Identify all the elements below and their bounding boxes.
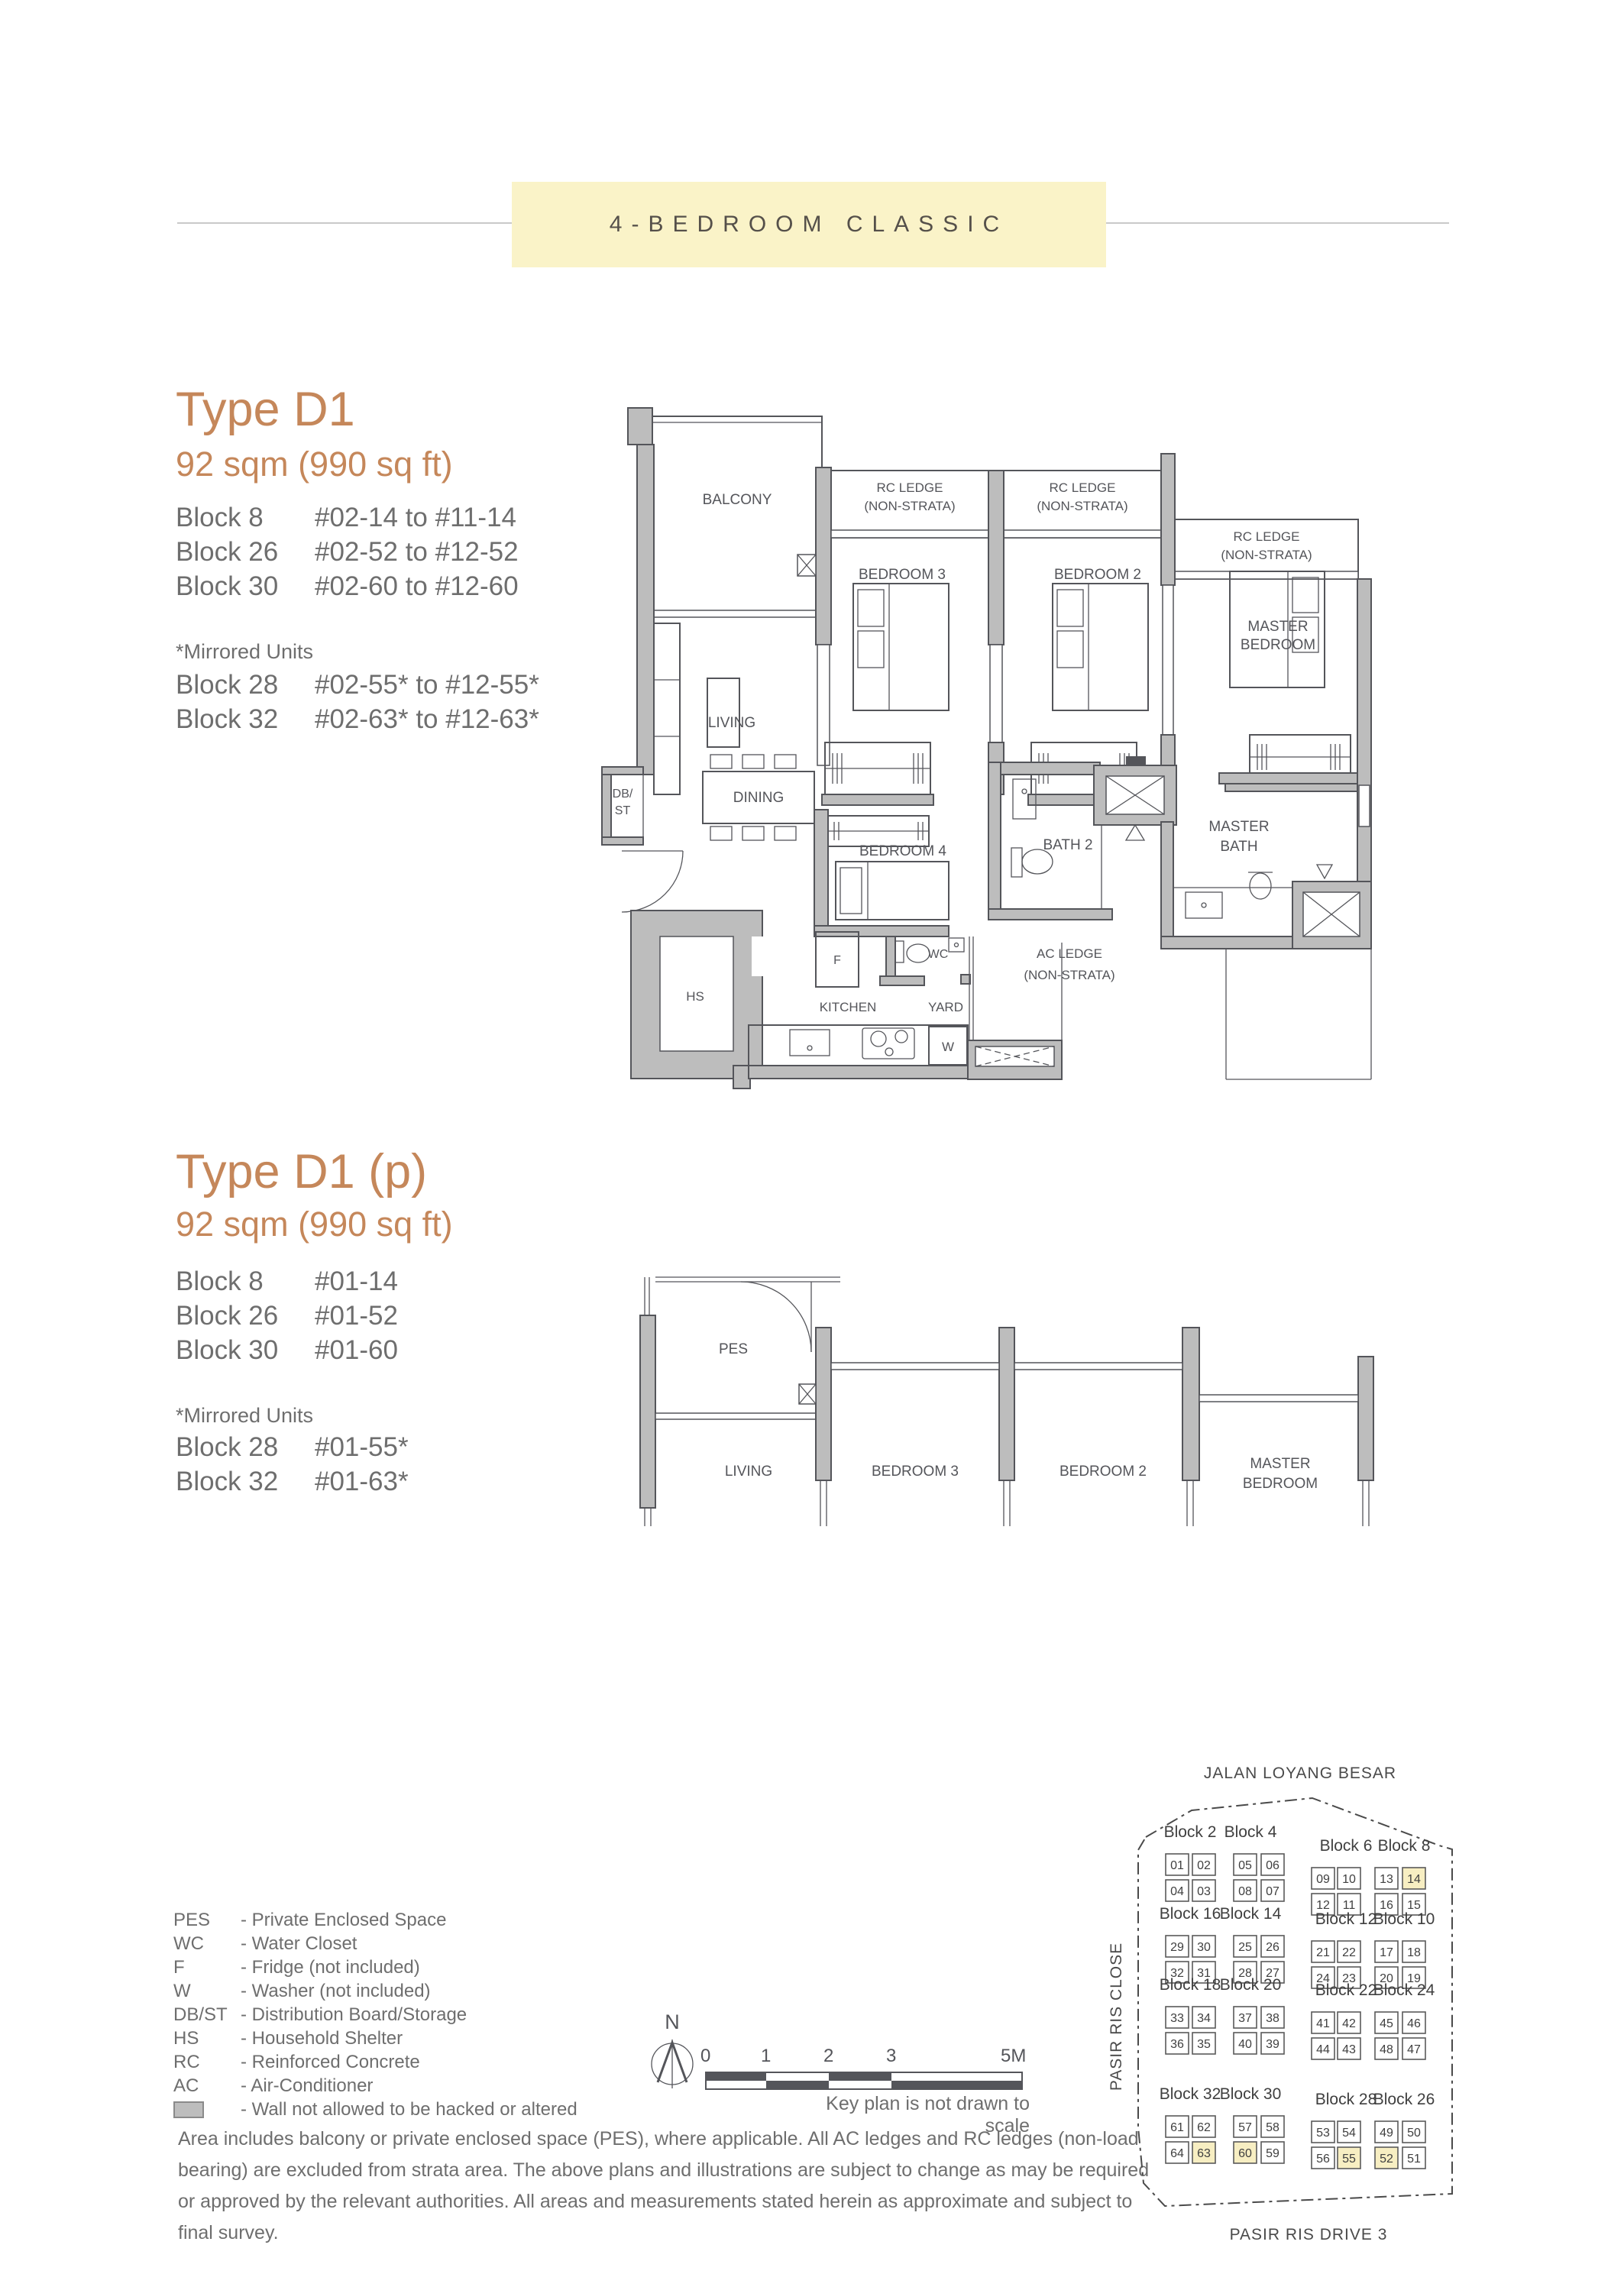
- legend-desc: - Wall not allowed to be hacked or alter…: [241, 2099, 577, 2120]
- keyplan-unit-number: 51: [1407, 2153, 1421, 2166]
- keyplan-unit-number: 02: [1197, 1859, 1211, 1872]
- block-units: #01-14: [315, 1266, 398, 1297]
- bedroom4-bed: [836, 862, 949, 920]
- keyplan-unit-number: 13: [1380, 1873, 1393, 1886]
- keyplan-block-label: Block 28: [1315, 2091, 1377, 2108]
- keyplan-unit-number: 46: [1407, 2017, 1421, 2030]
- living-window: [655, 1413, 816, 1419]
- ac-ledge-boundary: [1062, 943, 1371, 1079]
- type-d1-title: Type D1: [176, 382, 355, 437]
- keyplan-unit-number: 41: [1316, 2017, 1330, 2030]
- rc-ledge-label: RC LEDGE: [877, 480, 943, 495]
- fridge-label: F: [833, 954, 841, 967]
- block-name: Block 28: [176, 1432, 315, 1463]
- keyplan-block-label: Block 26: [1373, 2091, 1435, 2108]
- hs-label: HS: [686, 989, 704, 1004]
- block-row: Block 8#02-14 to #11-14: [176, 500, 519, 535]
- legend-desc: - Private Enclosed Space: [241, 1910, 446, 1931]
- tick-3: 3: [886, 2046, 896, 2067]
- bedroom3-label: BEDROOM 3: [872, 1464, 959, 1480]
- keyplan-unit-number: 07: [1266, 1885, 1279, 1898]
- pes-left-wall: [640, 1315, 655, 1508]
- block-row: Block 32#02-63* to #12-63*: [176, 702, 539, 736]
- st-label: ST: [615, 804, 631, 817]
- keyplan-unit-number: 47: [1407, 2043, 1421, 2056]
- tick-1: 1: [761, 2046, 771, 2067]
- legend-row: PES- Private Enclosed Space: [173, 1908, 577, 1932]
- block-units: #01-55*: [315, 1432, 409, 1463]
- legend-desc: - Reinforced Concrete: [241, 2052, 420, 2073]
- block-units: #02-52 to #12-52: [315, 537, 519, 568]
- keyplan-unit-number: 22: [1342, 1946, 1356, 1959]
- keyplan-unit-number: 43: [1342, 2043, 1356, 2056]
- master-bath-label2: BATH: [1220, 839, 1257, 855]
- street-pasir-ris-drive-3: PASIR RIS DRIVE 3: [1230, 2226, 1388, 2243]
- left-wall: [637, 445, 654, 775]
- dining-label: DINING: [733, 790, 785, 806]
- legend-wall-row: - Wall not allowed to be hacked or alter…: [173, 2098, 577, 2121]
- keyplan-unit-number: 42: [1342, 2017, 1356, 2030]
- bedroom3-label: BEDROOM 3: [859, 567, 946, 583]
- living-label: LIVING: [708, 715, 755, 731]
- legend-desc: - Household Shelter: [241, 2028, 403, 2049]
- block-units: #02-60 to #12-60: [315, 571, 519, 602]
- legend-abbr: DB/ST: [173, 2004, 241, 2026]
- block-row: Block 26#01-52: [176, 1299, 398, 1333]
- block-name: Block 26: [176, 1301, 315, 1331]
- street-pasir-ris-close: PASIR RIS CLOSE: [1108, 1942, 1125, 2091]
- keyplan-unit-number: 58: [1266, 2121, 1279, 2134]
- legend: PES- Private Enclosed Space WC- Water Cl…: [173, 1908, 577, 2121]
- balcony-label: BALCONY: [703, 492, 772, 508]
- legend-row: DB/ST- Distribution Board/Storage: [173, 2003, 577, 2027]
- keyplan-unit-number: 18: [1407, 1946, 1421, 1959]
- keyplan-unit-number: 33: [1170, 2012, 1184, 2025]
- bath2-label: BATH 2: [1043, 837, 1092, 853]
- living-label: LIVING: [725, 1464, 772, 1480]
- legend-abbr: WC: [173, 1933, 241, 1955]
- block-units: #01-63*: [315, 1467, 409, 1497]
- mirrored-note-p: *Mirrored Units: [176, 1404, 313, 1428]
- legend-desc: - Water Closet: [241, 1933, 357, 1955]
- ac-ledge-nonstrata-label: (NON-STRATA): [1024, 968, 1114, 982]
- keyplan-unit-number: 54: [1342, 2127, 1356, 2140]
- block-row: Block 32#01-63*: [176, 1464, 409, 1499]
- yard-label: YARD: [928, 1000, 963, 1014]
- keyplan-block-label: Block 10: [1373, 1910, 1435, 1928]
- keyplan-unit-number: 39: [1266, 2038, 1279, 2051]
- keyplan-unit-number: 48: [1380, 2043, 1393, 2056]
- keyplan-unit-number: 30: [1197, 1941, 1211, 1954]
- non-strata-label: (NON-STRATA): [1037, 499, 1127, 513]
- block-units: #02-55* to #12-55*: [315, 670, 539, 700]
- keyplan-block-label: Block 30: [1220, 2085, 1282, 2103]
- block-units: #02-14 to #11-14: [315, 503, 516, 533]
- mirrored-note: *Mirrored Units: [176, 640, 313, 664]
- keyplan-unit-number: 10: [1342, 1873, 1356, 1886]
- legend-abbr: RC: [173, 2052, 241, 2073]
- keyplan-block-label: Block 16: [1160, 1905, 1221, 1923]
- keyplan-block-label: Block 4: [1224, 1823, 1277, 1841]
- non-strata-label: (NON-STRATA): [1221, 548, 1312, 562]
- floorplan-type-d1p: PES LIVING BEDROOM 3 BEDROOM 2 MASTER BE…: [611, 1260, 1375, 1528]
- type-d1p-title: Type D1 (p): [176, 1144, 427, 1199]
- legend-desc: - Washer (not included): [241, 1981, 431, 2002]
- block-name: Block 8: [176, 503, 315, 533]
- keyplan-unit-number: 37: [1238, 2012, 1252, 2025]
- type-d1-block-list: Block 8#02-14 to #11-14 Block 26#02-52 t…: [176, 500, 519, 603]
- keyplan-unit-number: 09: [1316, 1873, 1330, 1886]
- db-label: DB/: [613, 788, 633, 801]
- tick-5m: 5M: [1001, 2046, 1026, 2067]
- block-name: Block 28: [176, 670, 315, 700]
- pes-label: PES: [719, 1341, 748, 1357]
- keyplan-block-label: Block 20: [1220, 1976, 1282, 1994]
- bedroom3-bed: [853, 584, 949, 710]
- legend-abbr: HS: [173, 2028, 241, 2049]
- balcony-window: [652, 610, 817, 617]
- non-strata-label: (NON-STRATA): [864, 499, 955, 513]
- entry-door: [622, 851, 683, 912]
- keyplan: JALAN LOYANG BESAR PASIR RIS CLOSE PASIR…: [1100, 1742, 1612, 2269]
- legend-desc: - Distribution Board/Storage: [241, 2004, 467, 2026]
- legend-row: W- Washer (not included): [173, 1979, 577, 2003]
- keyplan-unit-number: 56: [1316, 2153, 1330, 2166]
- keyplan-unit-number: 34: [1197, 2012, 1211, 2025]
- type-d1p-area: 92 sqm (990 sq ft): [176, 1205, 453, 1244]
- keyplan-unit-number: 06: [1266, 1859, 1279, 1872]
- tick-2: 2: [823, 2046, 833, 2067]
- keyplan-unit-number: 62: [1197, 2121, 1211, 2134]
- keyplan-unit-number: 21: [1316, 1946, 1330, 1959]
- keyplan-block-label: Block 22: [1315, 1981, 1377, 1999]
- block-units: #01-52: [315, 1301, 398, 1331]
- page-banner: 4-BEDROOM CLASSIC: [512, 182, 1106, 267]
- bedroom4-label: BEDROOM 4: [859, 843, 946, 859]
- legend-row: HS- Household Shelter: [173, 2027, 577, 2050]
- keyplan-block-label: Block 8: [1378, 1837, 1431, 1855]
- keyplan-unit-number: 01: [1170, 1859, 1184, 1872]
- keyplan-block-label: Block 24: [1373, 1981, 1435, 1999]
- keyplan-block-label: Block 12: [1315, 1910, 1377, 1928]
- wc-room: [814, 926, 973, 1040]
- bedroom4-wardrobe: [828, 816, 929, 846]
- legend-row: AC- Air-Conditioner: [173, 2074, 577, 2098]
- pes-door: [741, 1282, 811, 1352]
- block-name: Block 30: [176, 1335, 315, 1366]
- keyplan-unit-number: 50: [1407, 2127, 1421, 2140]
- master-bedroom-label: MASTER: [1250, 1456, 1310, 1472]
- bedroom2-label: BEDROOM 2: [1059, 1464, 1147, 1480]
- keyplan-unit-number: 53: [1316, 2127, 1330, 2140]
- keyplan-unit-number: 63: [1197, 2147, 1211, 2160]
- block-row: Block 30#02-60 to #12-60: [176, 569, 519, 603]
- master-bedroom-label: MASTER: [1247, 619, 1308, 635]
- keyplan-unit-number: 36: [1170, 2038, 1184, 2051]
- master-bedroom-label2: BEDROOM: [1243, 1476, 1318, 1492]
- block-row: Block 30#01-60: [176, 1333, 398, 1367]
- tick-0: 0: [700, 2046, 710, 2067]
- keyplan-unit-number: 04: [1170, 1885, 1184, 1898]
- block-row: Block 28#01-55*: [176, 1430, 409, 1464]
- keyplan-unit-number: 64: [1170, 2147, 1184, 2160]
- wc-label: WC: [928, 948, 949, 961]
- keyplan-unit-number: 05: [1238, 1859, 1252, 1872]
- block-row: Block 26#02-52 to #12-52: [176, 535, 519, 569]
- bedroom3-wardrobe: [825, 742, 930, 794]
- legend-abbr: F: [173, 1957, 241, 1978]
- rc-ledge-label: RC LEDGE: [1234, 529, 1300, 544]
- master-bedroom-label2: BEDROOM: [1241, 637, 1315, 653]
- bedroom2-bed: [1053, 584, 1148, 710]
- floorplan-type-d1: BALCONY RC LEDGE (NON-STRATA) RC LEDGE (…: [596, 397, 1375, 1100]
- disclaimer-text: Area includes balcony or private enclose…: [178, 2124, 1171, 2249]
- kitchen-counter: [749, 1025, 968, 1066]
- type-d1p-mirrored-list: Block 28#01-55* Block 32#01-63*: [176, 1430, 409, 1499]
- scale-bar: [705, 2072, 1023, 2090]
- keyplan-unit-number: 03: [1197, 1885, 1211, 1898]
- keyplan-unit-number: 25: [1238, 1941, 1252, 1954]
- legend-row: WC- Water Closet: [173, 1932, 577, 1955]
- brochure-page: 4-BEDROOM CLASSIC Type D1 92 sqm (990 sq…: [0, 0, 1624, 2274]
- keyplan-unit-number: 49: [1380, 2127, 1393, 2140]
- keyplan-unit-number: 40: [1238, 2038, 1252, 2051]
- master-bath-room: [1161, 773, 1371, 949]
- right-wall: [1358, 1357, 1373, 1480]
- street-jalan-loyang-besar: JALAN LOYANG BESAR: [1204, 1765, 1396, 1782]
- block-units: #02-63* to #12-63*: [315, 704, 539, 735]
- ac-ledge-box: [968, 1040, 1062, 1079]
- north-compass: N: [645, 2009, 699, 2093]
- bedroom2-label: BEDROOM 2: [1054, 567, 1141, 583]
- block-name: Block 8: [176, 1266, 315, 1297]
- rc-ledge-label: RC LEDGE: [1050, 480, 1116, 495]
- kitchen-label: KITCHEN: [820, 1000, 877, 1014]
- keyplan-unit-number: 44: [1316, 2043, 1330, 2056]
- keyplan-unit-number: 57: [1238, 2121, 1252, 2134]
- master-bath-label: MASTER: [1208, 819, 1269, 835]
- legend-abbr: W: [173, 1981, 241, 2002]
- banner-label: 4-BEDROOM CLASSIC: [610, 212, 1008, 238]
- keyplan-block-label: Block 14: [1220, 1905, 1282, 1923]
- legend-desc: - Air-Conditioner: [241, 2075, 373, 2097]
- keyplan-unit-number: 38: [1266, 2012, 1279, 2025]
- balcony-outline: [652, 416, 822, 613]
- keyplan-block-label: Block 18: [1160, 1976, 1221, 1994]
- block-units: #01-60: [315, 1335, 398, 1366]
- keyplan-block-label: Block 2: [1164, 1823, 1217, 1841]
- legend-desc: - Fridge (not included): [241, 1957, 420, 1978]
- keyplan-unit-number: 35: [1197, 2038, 1211, 2051]
- block-row: Block 28#02-55* to #12-55*: [176, 668, 539, 702]
- keyplan-unit-number: 60: [1238, 2147, 1252, 2160]
- keyplan-unit-number: 55: [1342, 2153, 1356, 2166]
- legend-row: RC- Reinforced Concrete: [173, 2050, 577, 2074]
- keyplan-unit-number: 08: [1238, 1885, 1252, 1898]
- block-name: Block 30: [176, 571, 315, 602]
- keyplan-unit-number: 17: [1380, 1946, 1393, 1959]
- legend-abbr: PES: [173, 1910, 241, 1931]
- keyplan-unit-number: 52: [1380, 2153, 1393, 2166]
- legend-row: F- Fridge (not included): [173, 1955, 577, 1979]
- block-row: Block 8#01-14: [176, 1264, 398, 1299]
- type-d1-area: 92 sqm (990 sq ft): [176, 445, 453, 484]
- wall-swatch: [173, 2101, 204, 2118]
- keyplan-unit-number: 26: [1266, 1941, 1279, 1954]
- type-d1-mirrored-list: Block 28#02-55* to #12-55* Block 32#02-6…: [176, 668, 539, 736]
- north-label: N: [665, 2010, 680, 2033]
- keyplan-unit-number: 59: [1266, 2147, 1279, 2160]
- type-d1p-block-list: Block 8#01-14 Block 26#01-52 Block 30#01…: [176, 1264, 398, 1367]
- keyplan-unit-number: 14: [1407, 1873, 1421, 1886]
- ac-ledge-label: AC LEDGE: [1037, 946, 1102, 961]
- keyplan-block-label: Block 6: [1320, 1837, 1373, 1855]
- keyplan-unit-number: 29: [1170, 1941, 1184, 1954]
- legend-abbr: AC: [173, 2075, 241, 2097]
- keyplan-unit-number: 45: [1380, 2017, 1393, 2030]
- keyplan-unit-number: 61: [1170, 2121, 1184, 2134]
- washer-label: W: [942, 1040, 954, 1054]
- block-name: Block 32: [176, 704, 315, 735]
- block-name: Block 26: [176, 537, 315, 568]
- keyplan-block-label: Block 32: [1160, 2085, 1221, 2103]
- block-name: Block 32: [176, 1467, 315, 1497]
